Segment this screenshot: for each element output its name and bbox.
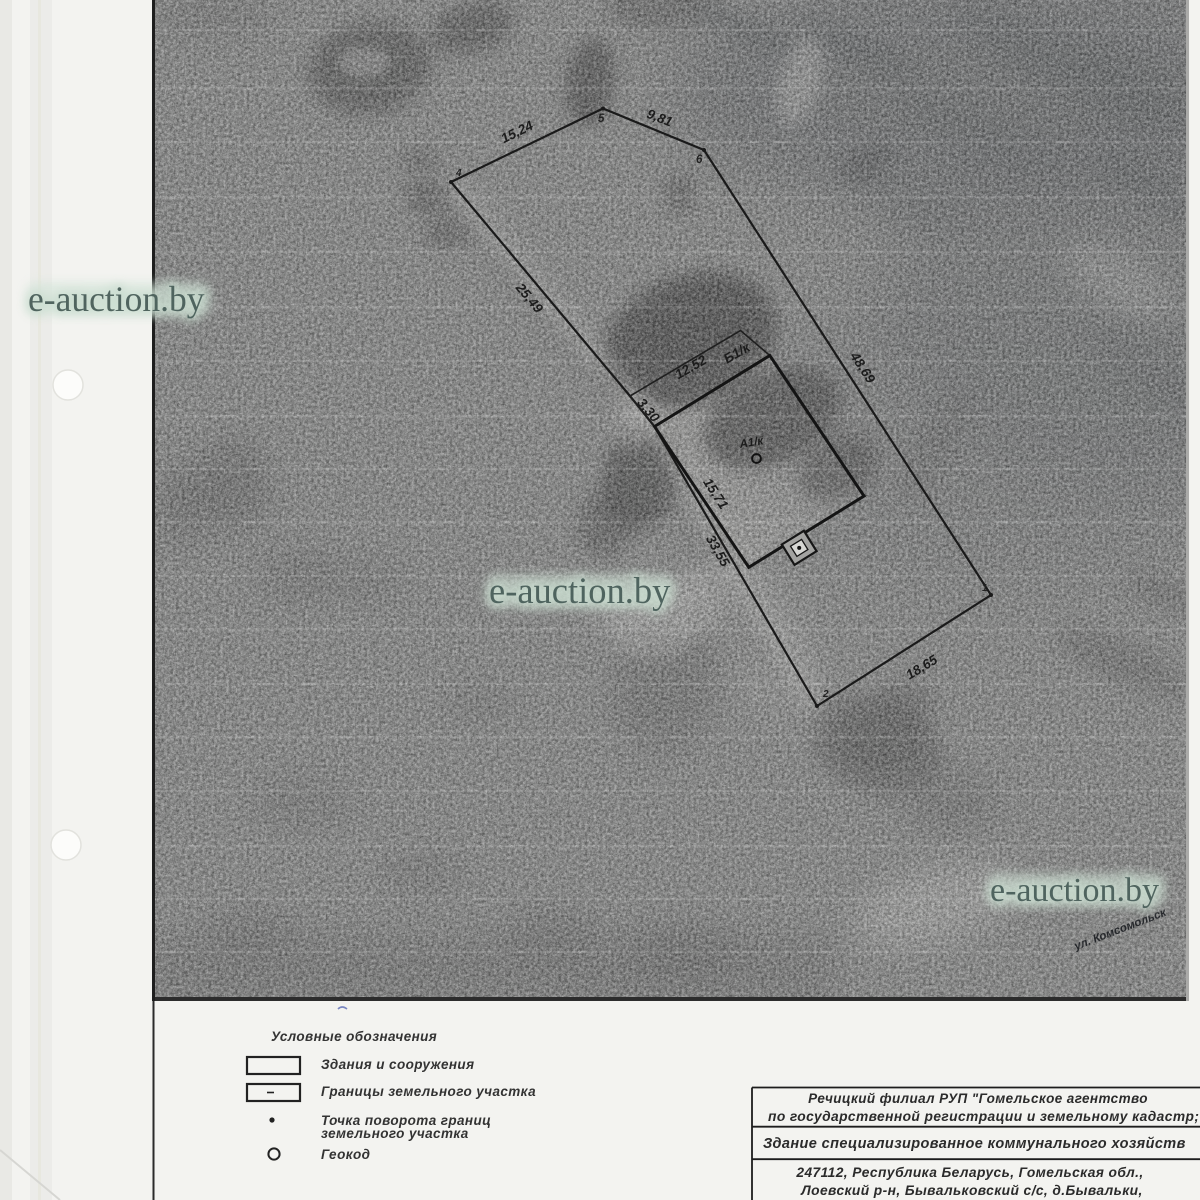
svg-text:4: 4 [455,168,462,179]
svg-text:2: 2 [822,689,829,700]
svg-text:Границы земельного участка: Границы земельного участка [321,1084,536,1099]
svg-text:Речицкий филиал РУП "Гомельско: Речицкий филиал РУП "Гомельское агентств… [808,1091,1148,1106]
svg-text:6: 6 [696,154,703,166]
svg-text:по государственной регистрации: по государственной регистрации и земельн… [768,1109,1199,1124]
svg-text:Здание специализированное комм: Здание специализированное коммунального … [763,1136,1186,1152]
svg-text:e-auction.by: e-auction.by [28,279,205,319]
svg-text:5: 5 [598,113,605,125]
svg-text:земельного участка: земельного участка [321,1126,469,1141]
svg-text:Геокод: Геокод [321,1147,370,1162]
svg-text:1: 1 [982,583,988,594]
svg-text:Условные обозначения: Условные обозначения [271,1029,437,1044]
svg-text:247112, Республика Беларусь, Г: 247112, Республика Беларусь, Гомельская … [795,1165,1143,1180]
svg-text:Здания и сооружения: Здания и сооружения [321,1057,474,1072]
svg-text:e-auction.by: e-auction.by [990,872,1159,909]
svg-text:Лоевский р-н, Бывальковский с/: Лоевский р-н, Бывальковский с/с, д.Бывал… [800,1183,1142,1198]
svg-text:e-auction.by: e-auction.by [489,570,671,611]
